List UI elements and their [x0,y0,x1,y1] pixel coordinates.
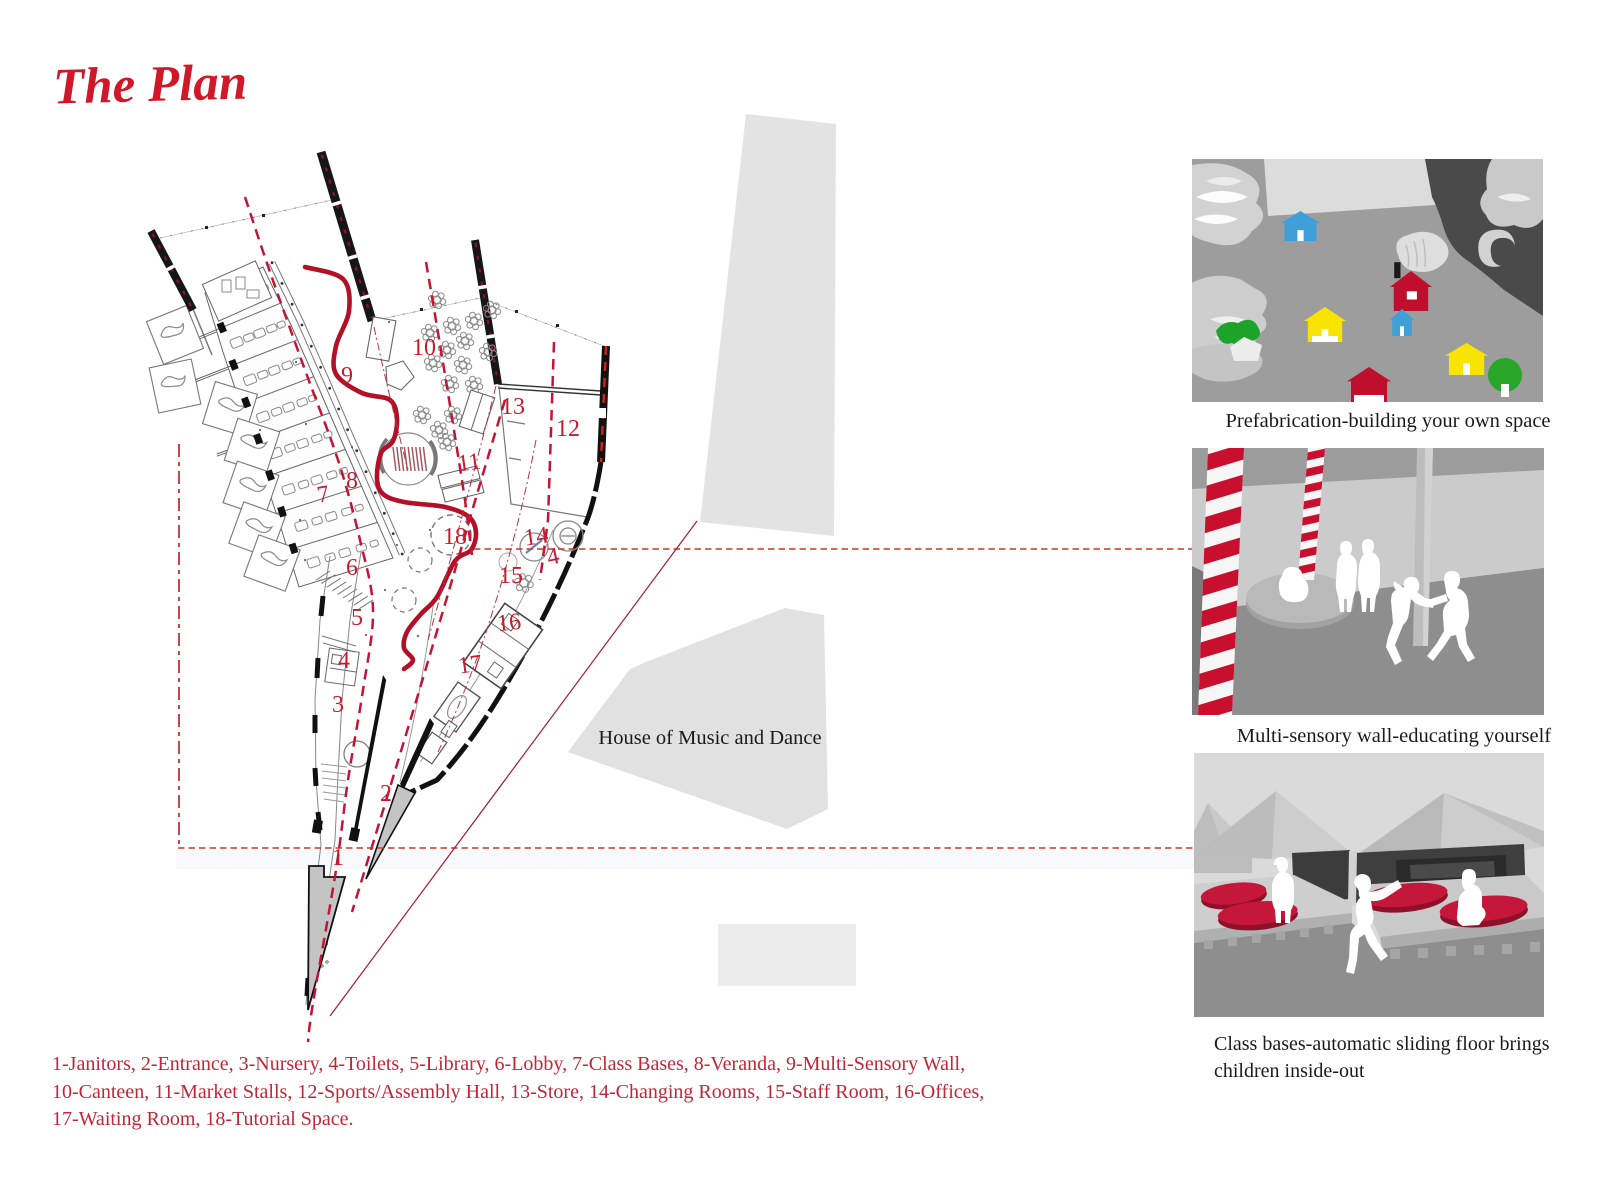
svg-text:8: 8 [346,468,358,494]
svg-text:6: 6 [346,555,358,581]
svg-text:11: 11 [456,449,483,478]
svg-text:House of Music and Dance: House of Music and Dance [598,727,821,749]
svg-text:9: 9 [341,363,353,389]
svg-text:1: 1 [332,845,344,871]
svg-text:4: 4 [545,543,562,571]
svg-text:16: 16 [496,609,523,637]
svg-text:2: 2 [380,781,392,807]
svg-text:10: 10 [412,335,436,361]
svg-text:12: 12 [556,416,580,442]
svg-text:13: 13 [501,394,525,420]
svg-text:5: 5 [351,605,363,631]
svg-text:15: 15 [499,563,523,589]
svg-text:17: 17 [456,650,483,679]
svg-text:3: 3 [332,692,344,718]
svg-text:4: 4 [338,648,350,674]
svg-text:18: 18 [443,524,467,550]
